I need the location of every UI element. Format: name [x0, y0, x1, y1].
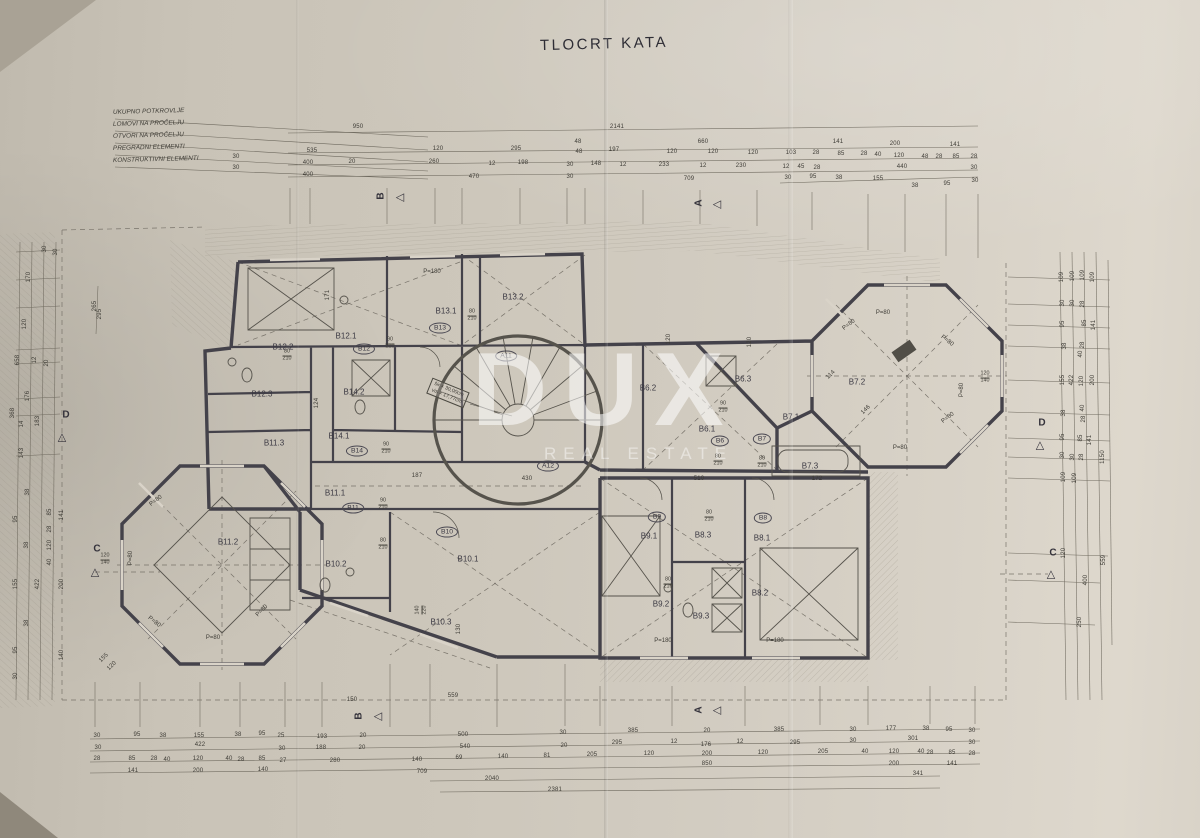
dimension-label: 295: [612, 740, 623, 746]
dimension-label: 198: [518, 160, 529, 166]
scanned-floorplan-sheet: { "title": "TLOCRT KATA", "watermark": {…: [0, 0, 1200, 838]
opening-size-label: 80210: [468, 310, 477, 323]
dimension-label: 20: [560, 743, 567, 749]
dimension-label: 40: [861, 749, 868, 755]
dimension-label: 188: [316, 745, 327, 751]
parapet-label: P=80: [147, 615, 162, 628]
dimension-label: 120: [193, 756, 204, 762]
room-label: B8.3: [695, 531, 711, 540]
dimension-label: 20: [44, 359, 50, 366]
dimension-label: 12: [488, 161, 495, 167]
section-marker-letter: B: [376, 192, 387, 199]
parapet-label: P=180: [423, 269, 441, 275]
dimension-label: 30: [13, 672, 19, 679]
dimension-label: 141: [1087, 435, 1093, 446]
room-label: B13.2: [503, 293, 524, 302]
dimension-label: 30: [1060, 299, 1066, 306]
dimension-label: 28: [926, 750, 933, 756]
opening-size-label: 80210: [714, 455, 723, 468]
dimension-label: 172: [812, 476, 823, 482]
dimension-label: 200: [59, 579, 65, 590]
room-label: B7.1: [783, 413, 799, 422]
dimension-label: 30: [968, 740, 975, 746]
parapet-label: P=80: [940, 334, 955, 347]
parapet-label: P=80: [206, 635, 220, 641]
dimension-label: 301: [908, 736, 919, 742]
parapet-label: P=80: [893, 445, 907, 451]
dimension-label: 20: [348, 159, 355, 165]
dimension-label: 28: [970, 154, 977, 160]
dimension-label: 95: [13, 646, 19, 653]
dimension-label: 120: [758, 750, 769, 756]
section-marker-letter: D: [1038, 418, 1045, 429]
dimension-label: 38: [911, 183, 918, 189]
room-label: B10.2: [326, 560, 347, 569]
dimension-label: 85: [47, 508, 53, 515]
dimension-label: 709: [684, 176, 695, 182]
dimension-label: 120: [106, 660, 118, 672]
dimension-label: 109: [1072, 473, 1078, 484]
opening-size-label: 80210: [664, 578, 673, 591]
room-label: B12.1: [336, 332, 357, 341]
dimension-label: 500: [458, 732, 469, 738]
dimension-label: 85: [258, 756, 265, 762]
section-marker-letter: B: [354, 712, 365, 719]
parapet-label: P=180: [654, 638, 672, 644]
room-label: B12.2: [273, 343, 294, 352]
room-number-oval: B13: [429, 323, 451, 334]
room-number-oval: B12: [353, 344, 375, 355]
dimension-label: 38: [25, 488, 31, 495]
dimension-label: 28: [968, 751, 975, 757]
dimension-label: 109: [1059, 272, 1065, 283]
dimension-label: 155: [13, 579, 19, 590]
dimension-label: 28: [1080, 341, 1086, 348]
dimension-label: 40: [1080, 404, 1086, 411]
room-number-oval: B6: [711, 436, 729, 447]
dimension-label: 109: [1080, 270, 1086, 281]
dimension-label: 440: [897, 164, 908, 170]
opening-size-label: 90210: [379, 499, 388, 512]
dimension-label: 140: [498, 754, 509, 760]
dimension-label: 141: [947, 761, 958, 767]
room-number-oval: B8: [754, 513, 772, 524]
room-number-oval: B10: [436, 527, 458, 538]
dimension-label: 385: [774, 727, 785, 733]
section-marker-arrow-icon: ◁: [396, 191, 404, 204]
opening-size-label: 80210: [705, 511, 714, 524]
dimension-label: 155: [98, 652, 110, 664]
dimension-label: 81: [543, 753, 550, 759]
dimension-label: 155: [194, 733, 205, 739]
dimension-label: 12: [670, 739, 677, 745]
room-number-oval: B11: [342, 503, 364, 514]
parapet-label: P=80: [149, 494, 164, 507]
dimension-label: 20: [359, 733, 366, 739]
dimension-label: 200: [1090, 375, 1096, 386]
section-marker-letter: D: [62, 410, 69, 421]
dimension-label: 27: [279, 758, 286, 764]
dimension-label: 141: [59, 510, 65, 521]
dimension-label: 176: [25, 391, 31, 402]
section-marker-arrow-icon: △: [1036, 439, 1044, 452]
dimension-label: 197: [609, 147, 620, 153]
dimension-label: 12: [736, 739, 743, 745]
dimension-label: 200: [193, 768, 204, 774]
dimension-label: 40: [1078, 350, 1084, 357]
dimension-label: 28: [813, 165, 820, 171]
dimension-label: 48: [921, 154, 928, 160]
room-label: B11.2: [218, 538, 238, 547]
dimension-label: 95: [133, 732, 140, 738]
dimension-label: 205: [818, 749, 829, 755]
dimension-label: 143: [19, 448, 25, 459]
dimension-label: 141: [833, 139, 844, 145]
room-label: B8.1: [754, 534, 770, 543]
dimension-label: 40: [163, 757, 170, 763]
dimension-label: 30: [93, 733, 100, 739]
dimension-label: 28: [1079, 453, 1085, 460]
dimension-label: 30: [970, 165, 977, 171]
dimension-label: 295: [790, 740, 801, 746]
dimension-label: 12: [32, 356, 38, 363]
dimension-label: 176: [701, 742, 712, 748]
dimension-label: 141: [1091, 320, 1097, 331]
dimension-label: 95: [945, 727, 952, 733]
dimension-label: 2040: [485, 776, 499, 782]
dimension-label: 171: [325, 290, 331, 301]
dimension-label: 95: [809, 174, 816, 180]
opening-size-label: 90210: [386, 338, 395, 351]
room-label: B9.2: [653, 600, 669, 609]
dimension-label: 28: [1081, 415, 1087, 422]
dimension-label: 30: [849, 738, 856, 744]
dimension-label: 1150: [1100, 450, 1106, 464]
dimension-label: 28: [860, 151, 867, 157]
section-marker-arrow-icon: ◁: [713, 198, 721, 211]
dimension-label: 170: [26, 272, 32, 283]
dimension-label: 25: [277, 733, 284, 739]
parapet-label: P=80: [959, 383, 965, 397]
dimension-label: 422: [195, 742, 206, 748]
dimension-label: 400: [1083, 575, 1089, 586]
room-label: B13.1: [436, 307, 457, 316]
room-label: B11.1: [325, 489, 345, 498]
dimension-label: 85: [1082, 319, 1088, 326]
dimension-label: 95: [943, 181, 950, 187]
room-number-oval: B14: [346, 446, 368, 457]
dimension-label: 422: [1069, 375, 1075, 386]
dimension-label: 95: [1060, 320, 1066, 327]
dimension-label: 141: [128, 768, 139, 774]
section-marker-letter: A: [694, 706, 705, 713]
room-label: B8.2: [752, 589, 768, 598]
dimension-label: 280: [330, 758, 341, 764]
dimension-label: 559: [1101, 555, 1107, 566]
dimension-label: 177: [886, 726, 897, 732]
room-label: B6.1: [699, 425, 715, 434]
dimension-label: 400: [303, 172, 314, 178]
dimension-label: 30: [968, 728, 975, 734]
dimension-label: 103: [786, 150, 797, 156]
dimension-label: 200: [890, 141, 901, 147]
dimension-label: 12: [619, 162, 626, 168]
room-label: B7.2: [849, 378, 865, 387]
dimension-label: 200: [702, 751, 713, 757]
labels-layer: 9502141486601412001415351202954819712012…: [0, 0, 1200, 838]
dimension-label: 28: [47, 525, 53, 532]
dimension-label: 38: [159, 733, 166, 739]
dimension-label: 114: [825, 369, 836, 380]
dimension-label: 120: [644, 751, 655, 757]
dimension-label: 120: [894, 153, 905, 159]
opening-size-label: 90210: [382, 443, 391, 456]
room-label: B6.2: [640, 384, 656, 393]
section-marker-arrow-icon: △: [1047, 568, 1055, 581]
dimension-label: 30: [971, 178, 978, 184]
dimension-label: 559: [448, 693, 459, 699]
dimension-label: 2141: [610, 124, 624, 130]
dimension-label: 146: [860, 404, 872, 416]
dimension-label: 28: [150, 756, 157, 762]
dimension-label: 140: [258, 767, 269, 773]
room-number-oval: B9: [648, 512, 666, 523]
dimension-label: 470: [469, 174, 480, 180]
opening-size-label: 80210: [379, 539, 388, 552]
dimension-label: 120: [22, 319, 28, 330]
dimension-label: 85: [948, 750, 955, 756]
dimension-label: 233: [659, 162, 670, 168]
dimension-label: 709: [417, 769, 428, 775]
dimension-label: 850: [702, 761, 713, 767]
dimension-label: 120: [748, 150, 759, 156]
dimension-label: 28: [93, 756, 100, 762]
dimension-label: 69: [455, 755, 462, 761]
dimension-label: 660: [698, 139, 709, 145]
dimension-label: 120: [667, 149, 678, 155]
room-label: B9.1: [641, 532, 657, 541]
room-label: B6.3: [735, 375, 751, 384]
dimension-label: 30: [232, 154, 239, 160]
room-label: B10.1: [458, 555, 479, 564]
dimension-label: 30: [784, 175, 791, 181]
dimension-label: 85: [837, 151, 844, 157]
section-marker-letter: A: [694, 199, 705, 206]
section-marker-arrow-icon: ◁: [713, 704, 721, 717]
dimension-label: 30: [566, 174, 573, 180]
section-marker-letter: C: [1049, 548, 1056, 559]
dimension-label: 30: [849, 727, 856, 733]
dimension-label: 148: [591, 161, 602, 167]
section-marker-letter: C: [93, 544, 100, 555]
dimension-label: 28: [935, 154, 942, 160]
dimension-label: 28: [812, 150, 819, 156]
dimension-label: 40: [225, 756, 232, 762]
room-number-oval: B7: [753, 434, 771, 445]
dimension-label: 30: [53, 248, 59, 255]
dimension-label: 28: [237, 757, 244, 763]
dimension-label: 38: [922, 726, 929, 732]
dimension-label: 430: [522, 476, 533, 482]
dimension-label: 250: [1077, 617, 1083, 628]
dimension-label: 30: [566, 162, 573, 168]
opening-size-label: 120140: [101, 554, 110, 567]
dimension-label: 658: [15, 355, 21, 366]
dimension-label: 130: [456, 624, 462, 635]
parapet-label: P=80: [255, 604, 269, 618]
dimension-label: 205: [587, 752, 598, 758]
opening-size-label: 80210: [758, 457, 767, 470]
dimension-label: 295: [97, 309, 103, 320]
dimension-label: 14: [19, 420, 25, 427]
dimension-label: 120: [666, 334, 672, 345]
dimension-label: 183: [35, 416, 41, 427]
dimension-label: 85: [952, 154, 959, 160]
dimension-label: 155: [873, 176, 884, 182]
dimension-label: 950: [353, 124, 364, 130]
dimension-label: 38: [24, 619, 30, 626]
dimension-label: 95: [1060, 433, 1066, 440]
dimension-label: 120: [433, 146, 444, 152]
room-label: B7.3: [802, 462, 818, 471]
dimension-label: 385: [628, 728, 639, 734]
room-label: B12.3: [252, 390, 273, 399]
dimension-label: 230: [736, 163, 747, 169]
dimension-label: 155: [1060, 375, 1066, 386]
dimension-label: 40: [917, 749, 924, 755]
dimension-label: 45: [797, 164, 804, 170]
dimension-label: 95: [13, 515, 19, 522]
dimension-label: 2381: [548, 787, 562, 793]
dimension-label: 535: [307, 148, 318, 154]
dimension-label: 109: [1090, 272, 1096, 283]
dimension-label: 20: [358, 745, 365, 751]
dimension-label: 30: [1070, 299, 1076, 306]
room-number-oval: A11: [495, 351, 517, 362]
dimension-label: 95: [258, 731, 265, 737]
dimension-label: 109: [1061, 472, 1067, 483]
section-marker-arrow-icon: △: [58, 431, 66, 444]
parapet-label: P=180: [766, 638, 784, 644]
dimension-label: 368: [10, 408, 16, 419]
dimension-label: 120: [1079, 376, 1085, 387]
room-number-oval: A12: [537, 461, 559, 472]
dimension-label: 120: [47, 540, 53, 551]
dimension-label: 30: [1070, 453, 1076, 460]
dimension-label: 140: [412, 757, 423, 763]
dimension-label: 28: [1080, 300, 1086, 307]
dimension-label: 30: [559, 730, 566, 736]
dimension-label: 109: [1070, 271, 1076, 282]
dimension-label: 85: [1078, 434, 1084, 441]
dimension-label: 295: [511, 146, 522, 152]
dimension-label: 187: [412, 473, 423, 479]
room-label: B14.1: [329, 432, 350, 441]
room-label: B9.3: [693, 612, 709, 621]
dimension-label: 30: [278, 746, 285, 752]
dimension-label: 20: [703, 728, 710, 734]
dimension-label: 260: [429, 159, 440, 165]
dimension-label: 140: [59, 650, 65, 661]
parapet-label: P=80: [128, 551, 134, 565]
dimension-label: 12: [699, 163, 706, 169]
dimension-label: 30: [232, 165, 239, 171]
dimension-label: 30: [42, 245, 48, 252]
dimension-label: 38: [1061, 409, 1067, 416]
opening-size-label: 140220: [416, 606, 429, 615]
dimension-label: 48: [575, 149, 582, 155]
section-marker-arrow-icon: △: [91, 566, 99, 579]
section-marker-arrow-icon: ◁: [374, 710, 382, 723]
dimension-label: 120: [708, 149, 719, 155]
dimension-label: 540: [460, 744, 471, 750]
dimension-label: 150: [347, 697, 358, 703]
dimension-label: 38: [234, 732, 241, 738]
dimension-label: 422: [35, 579, 41, 590]
dimension-label: 40: [874, 152, 881, 158]
room-label: B11.3: [264, 439, 284, 448]
parapet-label: P=80: [876, 310, 890, 316]
dimension-label: 400: [303, 160, 314, 166]
dimension-label: 200: [889, 761, 900, 767]
dimension-label: 120: [747, 337, 753, 348]
dimension-label: 85: [128, 756, 135, 762]
parapet-label: P=80: [941, 411, 956, 424]
dimension-label: 341: [913, 771, 924, 777]
dimension-label: 141: [950, 142, 961, 148]
dimension-label: 40: [47, 558, 53, 565]
dimension-label: 193: [317, 734, 328, 740]
dimension-label: 124: [314, 398, 320, 409]
dimension-label: 120: [1061, 548, 1067, 559]
dimension-label: 48: [574, 139, 581, 145]
dimension-label: 510: [694, 476, 705, 482]
dimension-label: 38: [24, 541, 30, 548]
room-label: B10.3: [431, 618, 452, 627]
dimension-label: 38: [1062, 342, 1068, 349]
dimension-label: 12: [782, 164, 789, 170]
opening-size-label: 90210: [719, 402, 728, 415]
dimension-label: 38: [835, 175, 842, 181]
opening-size-label: 120140: [981, 372, 990, 385]
dimension-label: 30: [1060, 451, 1066, 458]
dimension-label: 30: [94, 745, 101, 751]
room-label: B14.2: [344, 388, 365, 397]
dimension-label: 120: [889, 749, 900, 755]
parapet-label: P=80: [842, 318, 857, 331]
